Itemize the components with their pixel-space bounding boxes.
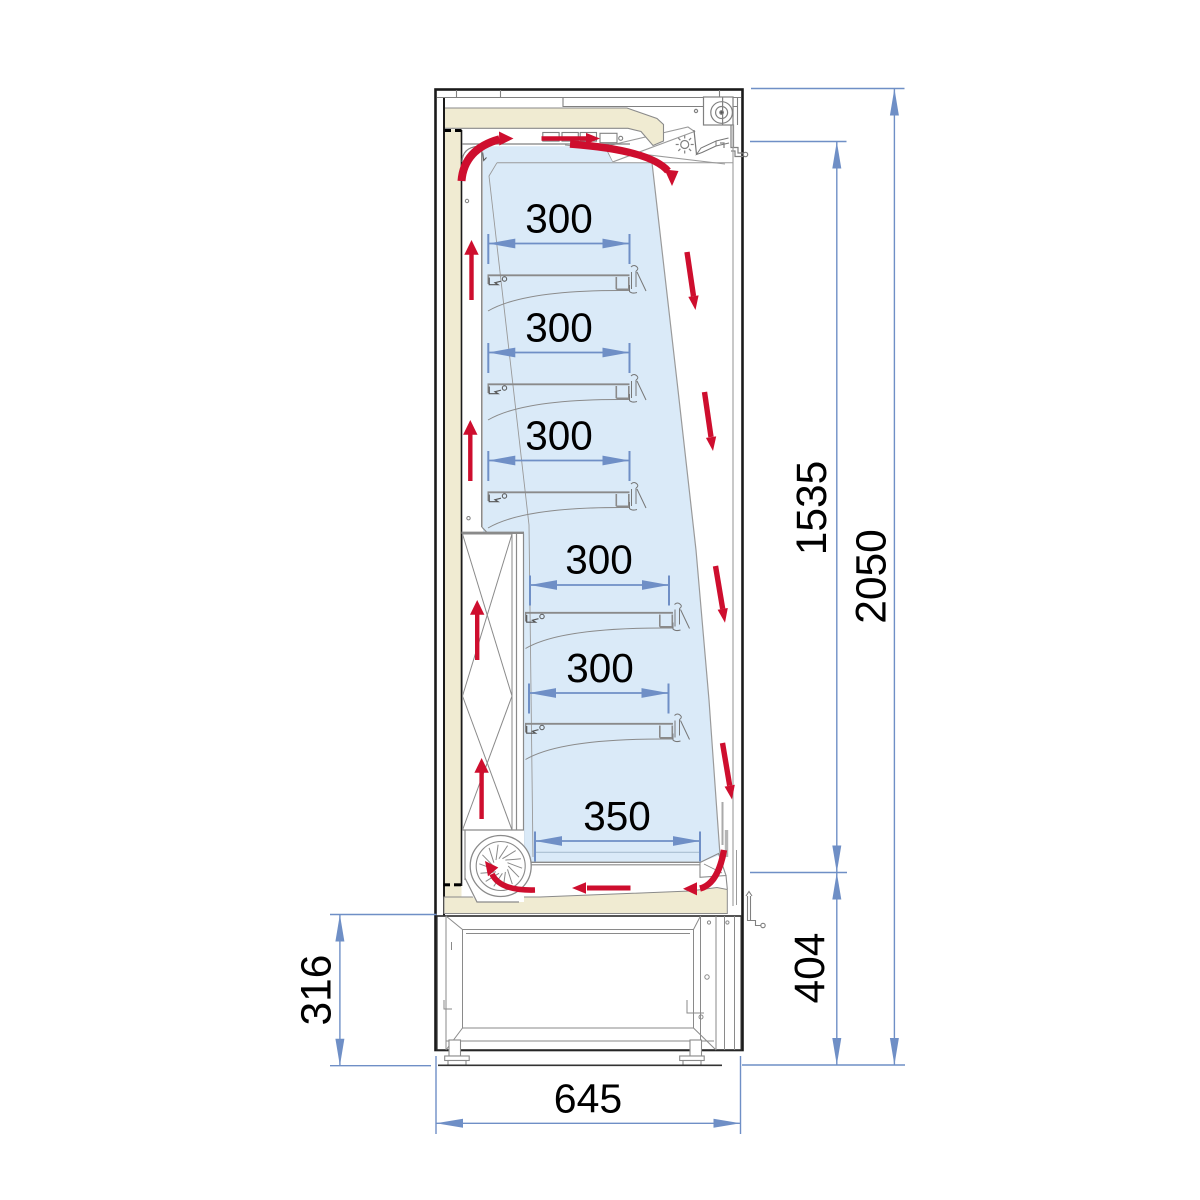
svg-text:300: 300 [565,537,633,583]
svg-text:316: 316 [294,955,341,1026]
svg-text:300: 300 [525,305,593,351]
svg-text:300: 300 [525,413,593,459]
svg-text:350: 350 [583,793,651,839]
svg-text:645: 645 [554,1076,622,1122]
svg-text:404: 404 [787,933,834,1004]
svg-text:1535: 1535 [789,461,836,556]
svg-text:300: 300 [525,196,593,242]
svg-text:2050: 2050 [849,529,896,624]
svg-text:300: 300 [566,645,634,691]
